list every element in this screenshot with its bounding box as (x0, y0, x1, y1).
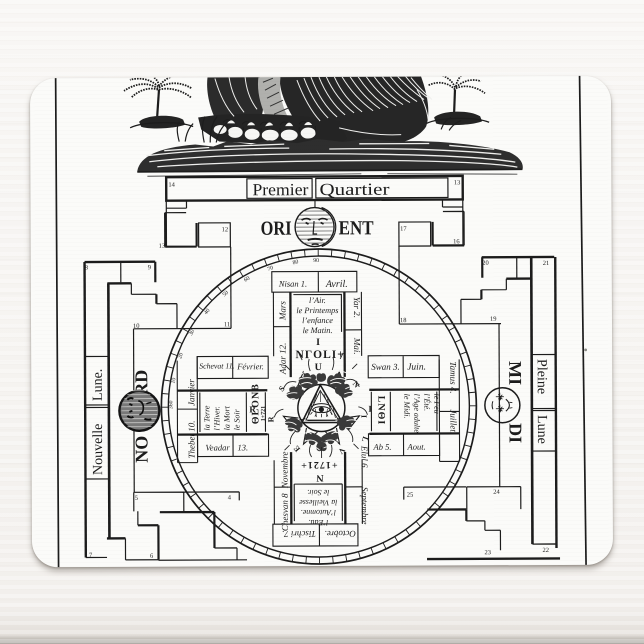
svg-text:Mars: Mars (277, 301, 287, 322)
svg-text:14: 14 (168, 182, 175, 189)
svg-text:Juin.: Juin. (407, 363, 426, 373)
svg-text:MI: MI (505, 361, 525, 385)
svg-text:RD: RD (131, 370, 151, 396)
svg-text:23: 23 (484, 549, 491, 556)
svg-text:E: E (292, 444, 302, 454)
svg-text:5: 5 (135, 495, 138, 502)
svg-text:I: I (316, 337, 320, 348)
svg-text:le Midi.: le Midi. (402, 394, 411, 419)
svg-text:ENT: ENT (339, 217, 375, 239)
svg-text:Mai.: Mai. (352, 337, 362, 355)
svg-text:Nisan 1.: Nisan 1. (278, 279, 307, 289)
svg-text:9: 9 (148, 264, 151, 271)
svg-text:11: 11 (224, 321, 230, 328)
svg-text:Septembre: Septembre (360, 487, 370, 525)
svg-text:16: 16 (453, 238, 460, 245)
svg-text:Quartier: Quartier (319, 180, 389, 199)
svg-text:18: 18 (400, 317, 407, 324)
svg-text:50: 50 (222, 290, 230, 298)
svg-text:NO: NO (131, 436, 151, 463)
svg-text:20: 20 (177, 352, 185, 360)
svg-text:l’enfance: l’enfance (302, 316, 333, 325)
svg-text:Veadar: Veadar (206, 442, 231, 452)
svg-text:ORI: ORI (261, 218, 292, 240)
svg-text:6: 6 (150, 553, 154, 560)
svg-text:Janvier: Janvier (186, 379, 196, 407)
svg-text:Juillet.: Juillet. (448, 409, 458, 434)
svg-text:l’Hiver.: l’Hiver. (212, 406, 221, 430)
svg-text:13: 13 (159, 243, 166, 250)
svg-text:Nouvelle: Nouvelle (91, 424, 106, 475)
svg-text:V: V (336, 446, 347, 456)
svg-text:le Soir.: le Soir. (307, 488, 329, 497)
svg-text:4: 4 (228, 494, 232, 501)
svg-text:I: I (359, 415, 368, 418)
svg-text:30: 30 (188, 329, 196, 337)
svg-text:R: R (249, 404, 256, 414)
svg-text:13.: 13. (238, 442, 249, 452)
svg-text:24: 24 (493, 489, 500, 496)
svg-text:13: 13 (454, 179, 461, 186)
svg-text:10: 10 (133, 323, 140, 330)
svg-text:Thebet 10.: Thebet 10. (186, 421, 196, 459)
svg-text:Elul 6.: Elul 6. (360, 445, 370, 470)
svg-text:I: I (368, 404, 372, 414)
svg-text:+1721+: +1721+ (300, 459, 337, 470)
svg-text:360: 360 (168, 400, 174, 409)
svg-text:1+721: 1+721 (261, 406, 267, 421)
svg-text:N: N (316, 472, 324, 483)
svg-text:Lune.: Lune. (91, 369, 106, 401)
svg-text:70: 70 (267, 265, 275, 273)
svg-text:Adar 12.: Adar 12. (278, 343, 288, 376)
svg-text:25: 25 (407, 492, 414, 499)
svg-text:l’Age adulte: l’Age adulte (412, 394, 421, 434)
svg-text:Octobre.: Octobre. (324, 529, 355, 539)
svg-text:Ab 5.: Ab 5. (373, 442, 392, 452)
svg-text:Novembre: Novembre (280, 451, 290, 489)
svg-text:N: N (351, 379, 362, 389)
svg-text:la Vieillesse: la Vieillesse (299, 498, 338, 507)
svg-text:Lune: Lune (534, 415, 549, 444)
svg-text:Aout.: Aout. (407, 442, 426, 452)
svg-text:7: 7 (89, 552, 93, 559)
svg-text:le Feu: le Feu (432, 393, 441, 413)
svg-text:Tischri 7.: Tischri 7. (282, 529, 316, 539)
svg-text:19: 19 (490, 316, 497, 323)
svg-text:17: 17 (400, 226, 407, 233)
svg-text:40: 40 (203, 308, 211, 316)
svg-text:Chesvan 8: Chesvan 8 (280, 493, 290, 531)
svg-text:21: 21 (543, 260, 550, 267)
svg-text:12: 12 (222, 226, 229, 233)
svg-text:DI: DI (505, 423, 525, 443)
svg-text:U: U (315, 362, 322, 373)
svg-text:S: S (277, 384, 287, 394)
svg-text:Premier: Premier (252, 180, 308, 199)
svg-text:la Terre: la Terre (202, 405, 211, 430)
svg-text:R: R (266, 416, 275, 422)
svg-text:le Printemps: le Printemps (296, 306, 338, 315)
svg-text:la Mort: la Mort (222, 405, 231, 430)
svg-text:Yar 2.: Yar 2. (352, 297, 362, 318)
svg-text:le Matin.: le Matin. (303, 326, 333, 335)
svg-text:60: 60 (243, 276, 251, 284)
svg-text:Avril.: Avril. (325, 279, 348, 290)
svg-text:Pleine: Pleine (534, 359, 549, 394)
svg-text:Février.: Février. (236, 361, 264, 371)
svg-text:ΝΓΟLI+: ΝΓΟLI+ (295, 349, 344, 361)
svg-text:Tamus 4.: Tamus 4. (448, 361, 458, 393)
svg-text:l’Automne.: l’Automne. (301, 508, 336, 517)
svg-text:20: 20 (482, 260, 489, 267)
svg-text:8: 8 (85, 265, 88, 272)
svg-text:LΝΘI: LΝΘI (375, 396, 386, 426)
svg-text:80: 80 (292, 259, 299, 266)
svg-text:Schevat 11.: Schevat 11. (199, 361, 234, 370)
svg-text:10: 10 (171, 377, 178, 384)
svg-text:l’Été.: l’Été. (422, 394, 431, 412)
svg-text:90: 90 (313, 258, 319, 264)
svg-text:Swan 3.: Swan 3. (371, 362, 400, 372)
svg-text:ΘLΟΝΒ: ΘLΟΝΒ (250, 383, 261, 424)
svg-text:le Soir: le Soir (232, 408, 241, 430)
svg-text:l’Air.: l’Air. (309, 296, 326, 305)
svg-text:22: 22 (542, 547, 549, 554)
svg-text:l’Eau.: l’Eau. (308, 518, 328, 527)
svg-text:L: L (360, 435, 370, 443)
